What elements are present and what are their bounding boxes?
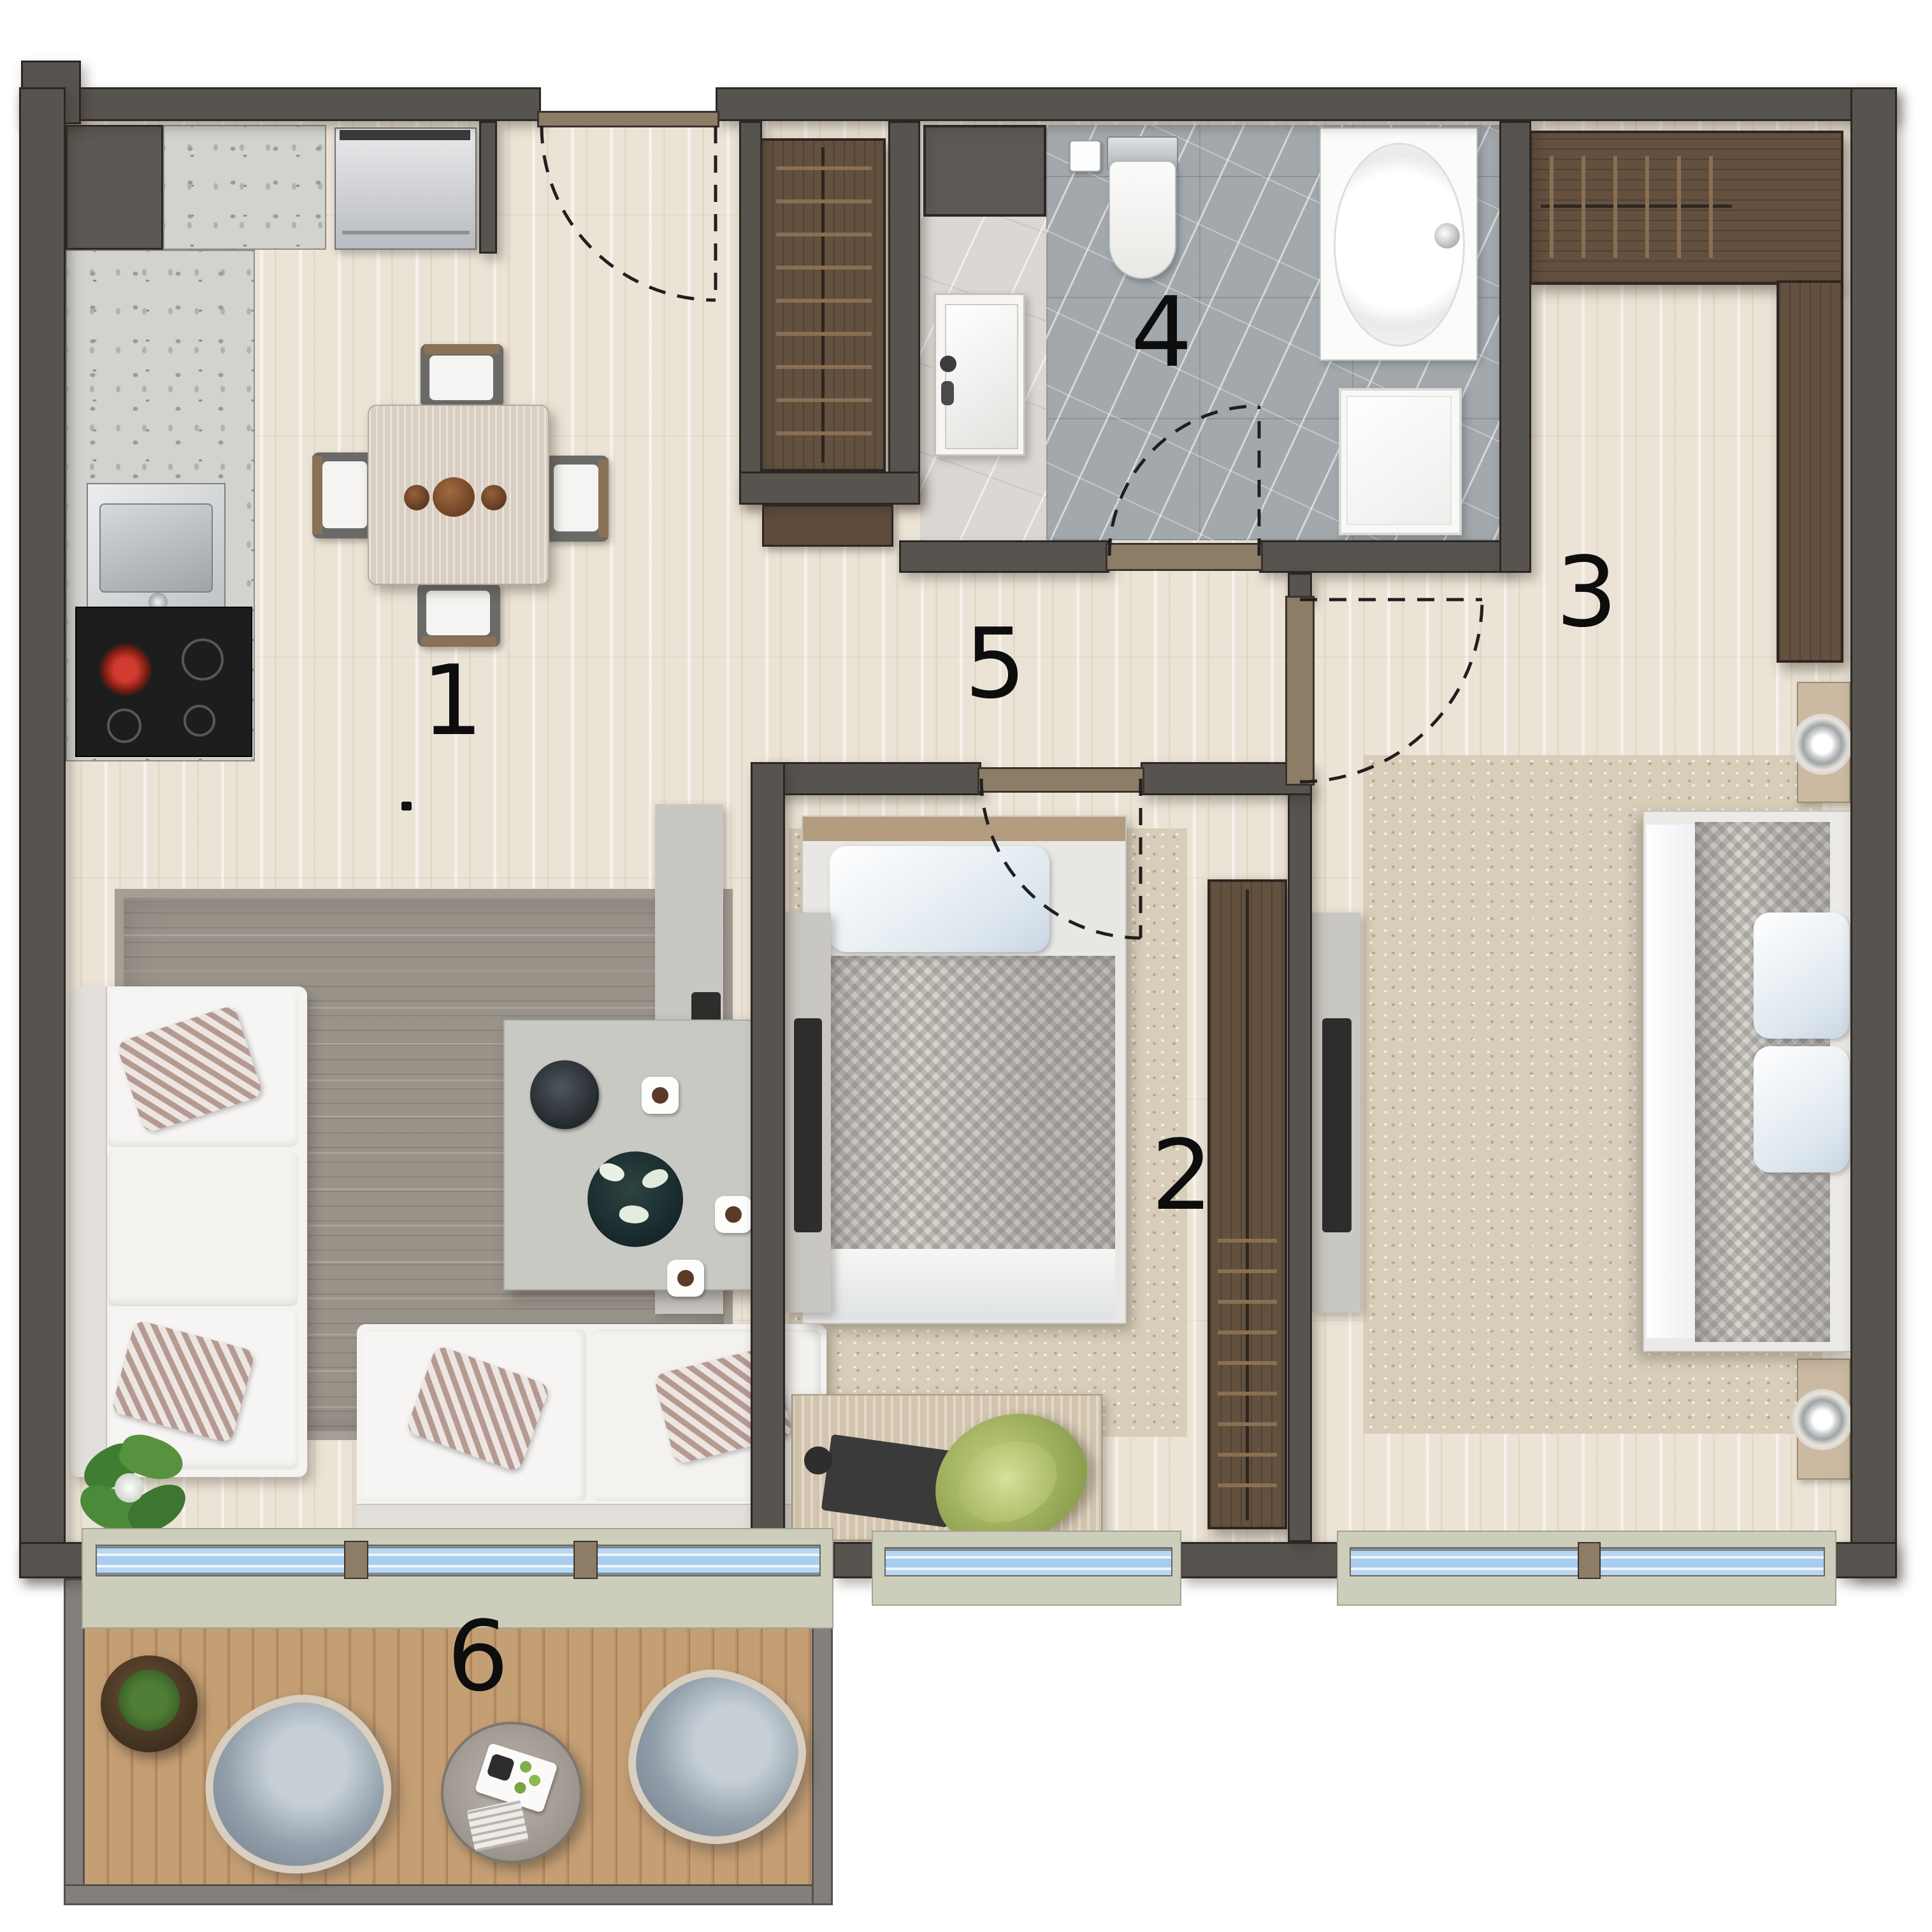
floor-plan-canvas: { "plan": { "type": "apartment-floor-pla… bbox=[0, 0, 1932, 1932]
wall-bath-bottom-right bbox=[1259, 540, 1508, 573]
tv-panel-bedroom bbox=[785, 912, 831, 1313]
outdoor-table bbox=[441, 1722, 582, 1863]
toilet bbox=[1109, 161, 1176, 279]
wall-right bbox=[1850, 87, 1897, 1578]
table-bowl-small bbox=[404, 485, 429, 510]
duct-shaft bbox=[923, 125, 1046, 217]
planter-greens bbox=[119, 1669, 180, 1731]
vanity-sink bbox=[934, 293, 1025, 456]
cooktop bbox=[75, 607, 252, 757]
washer-lid bbox=[1346, 396, 1452, 525]
window-mullion bbox=[573, 1541, 598, 1579]
wall-room2-top-left bbox=[762, 762, 981, 795]
washing-machine bbox=[1339, 388, 1462, 535]
dining-chair bbox=[545, 456, 609, 542]
bed-headboard bbox=[803, 817, 1125, 841]
wall-closet-left bbox=[739, 121, 762, 503]
dining-chair bbox=[421, 344, 503, 408]
wall-closet-right bbox=[888, 121, 920, 503]
table-lamp bbox=[1792, 1389, 1853, 1450]
bed-pillow bbox=[830, 846, 1049, 952]
tv-panel-master bbox=[1312, 912, 1360, 1313]
burner bbox=[182, 638, 224, 681]
bed-pillow bbox=[1754, 1046, 1849, 1172]
bed-sheet-fold bbox=[805, 1249, 1115, 1320]
balcony-wall-bottom bbox=[64, 1884, 833, 1905]
kitchen-corner-cabinet bbox=[66, 125, 163, 250]
cup bbox=[715, 1196, 752, 1233]
fridge bbox=[335, 127, 477, 250]
wall-bath-right bbox=[1499, 121, 1531, 573]
wall-bottom-seg bbox=[1180, 1542, 1338, 1578]
wall-room2-right bbox=[1288, 782, 1312, 1542]
tv-icon bbox=[1322, 1018, 1352, 1232]
entry-threshold bbox=[537, 111, 719, 127]
wall-bottom-seg bbox=[833, 1542, 873, 1578]
wardrobe-hangers bbox=[1218, 1239, 1277, 1513]
sink-basin bbox=[945, 304, 1018, 449]
chair-cushion bbox=[322, 461, 367, 528]
fridge-handle bbox=[342, 231, 470, 234]
chair-cushion bbox=[426, 591, 490, 635]
wall-kitchen-stub bbox=[479, 121, 497, 254]
planter bbox=[101, 1655, 198, 1752]
chair-back bbox=[312, 456, 322, 534]
room-label-hallway: 5 bbox=[965, 616, 1027, 712]
wall-left bbox=[19, 87, 66, 1578]
flower bbox=[639, 1165, 670, 1193]
fridge-top-trim bbox=[340, 130, 470, 140]
window-mullion bbox=[1578, 1542, 1601, 1579]
sofa-cushion bbox=[107, 1151, 298, 1306]
soap-dispenser bbox=[941, 381, 954, 405]
burner bbox=[107, 709, 141, 743]
room-label-living: 1 bbox=[422, 652, 484, 749]
wardrobe-bedroom bbox=[1207, 879, 1287, 1529]
sofa-vertical bbox=[70, 986, 307, 1477]
tv-icon bbox=[794, 1018, 822, 1232]
window-mullion bbox=[344, 1541, 368, 1579]
window-bedroom bbox=[884, 1547, 1172, 1576]
wall-room2-left bbox=[751, 762, 785, 1542]
bathroom-door-threshold bbox=[1106, 543, 1263, 571]
bed-duvet bbox=[805, 956, 1115, 1250]
sofa-backrest bbox=[70, 986, 107, 1477]
stray-mark bbox=[401, 802, 412, 811]
cup-coffee bbox=[725, 1206, 742, 1223]
tray-dish bbox=[486, 1753, 515, 1782]
chair-seat bbox=[946, 1426, 1070, 1538]
decor-plate bbox=[530, 1060, 599, 1129]
cup-coffee bbox=[652, 1087, 668, 1104]
plant-pot bbox=[115, 1473, 144, 1503]
coffee-table bbox=[503, 1020, 768, 1290]
magazine bbox=[466, 1799, 529, 1852]
corner-wardrobe-side bbox=[1777, 280, 1843, 663]
room-label-bathroom: 4 bbox=[1131, 284, 1193, 381]
table-bowl-small bbox=[481, 485, 507, 510]
chair-back bbox=[424, 344, 500, 354]
cup-coffee bbox=[677, 1270, 694, 1287]
burner bbox=[184, 705, 215, 737]
master-door-threshold bbox=[1285, 596, 1315, 786]
kitchen-counter-top bbox=[163, 125, 326, 250]
shower-drain bbox=[1434, 223, 1460, 249]
window-living bbox=[96, 1545, 821, 1576]
dining-chair bbox=[417, 583, 500, 647]
fruit bbox=[513, 1780, 528, 1795]
corner-wardrobe-top bbox=[1529, 131, 1843, 285]
wall-bath-bottom-left bbox=[899, 540, 1109, 573]
table-lamp bbox=[1792, 714, 1853, 775]
table-plant-bowl bbox=[588, 1151, 683, 1247]
chair-cushion bbox=[554, 465, 598, 531]
wall-closet-bottom bbox=[739, 472, 920, 505]
entry-closet bbox=[760, 138, 886, 472]
floor-plant bbox=[75, 1429, 190, 1543]
shower-tray bbox=[1320, 127, 1478, 361]
wall-bottom-seg bbox=[1835, 1542, 1897, 1578]
fruit bbox=[519, 1759, 533, 1774]
wardrobe-hangers bbox=[1550, 156, 1722, 258]
paper-holder bbox=[1069, 140, 1101, 172]
room-label-bedroom: 2 bbox=[1151, 1127, 1213, 1224]
bed-pillow bbox=[1754, 912, 1849, 1039]
chair-back bbox=[598, 459, 609, 537]
dining-table bbox=[368, 405, 549, 585]
wall-top-left bbox=[19, 87, 541, 121]
table-bowl bbox=[433, 477, 475, 517]
dining-chair bbox=[312, 452, 376, 538]
single-bed bbox=[802, 816, 1127, 1324]
flower bbox=[618, 1203, 650, 1226]
console-shelf bbox=[762, 505, 893, 547]
entry-recess bbox=[541, 59, 716, 115]
room-label-master: 3 bbox=[1556, 544, 1618, 641]
fruit bbox=[528, 1773, 542, 1788]
chair-cushion bbox=[429, 356, 493, 400]
bedroom-door-threshold bbox=[977, 767, 1144, 793]
desk-lamp-base bbox=[804, 1446, 832, 1474]
cup bbox=[667, 1260, 704, 1297]
room-label-balcony: 6 bbox=[447, 1608, 509, 1705]
faucet bbox=[940, 356, 956, 372]
cup bbox=[642, 1077, 679, 1114]
closet-hangers bbox=[776, 166, 872, 447]
sink-bowl-top bbox=[99, 503, 213, 593]
wall-top-right bbox=[716, 87, 1897, 121]
double-bed bbox=[1643, 811, 1853, 1352]
flower bbox=[596, 1160, 626, 1185]
burner-red bbox=[99, 643, 152, 696]
